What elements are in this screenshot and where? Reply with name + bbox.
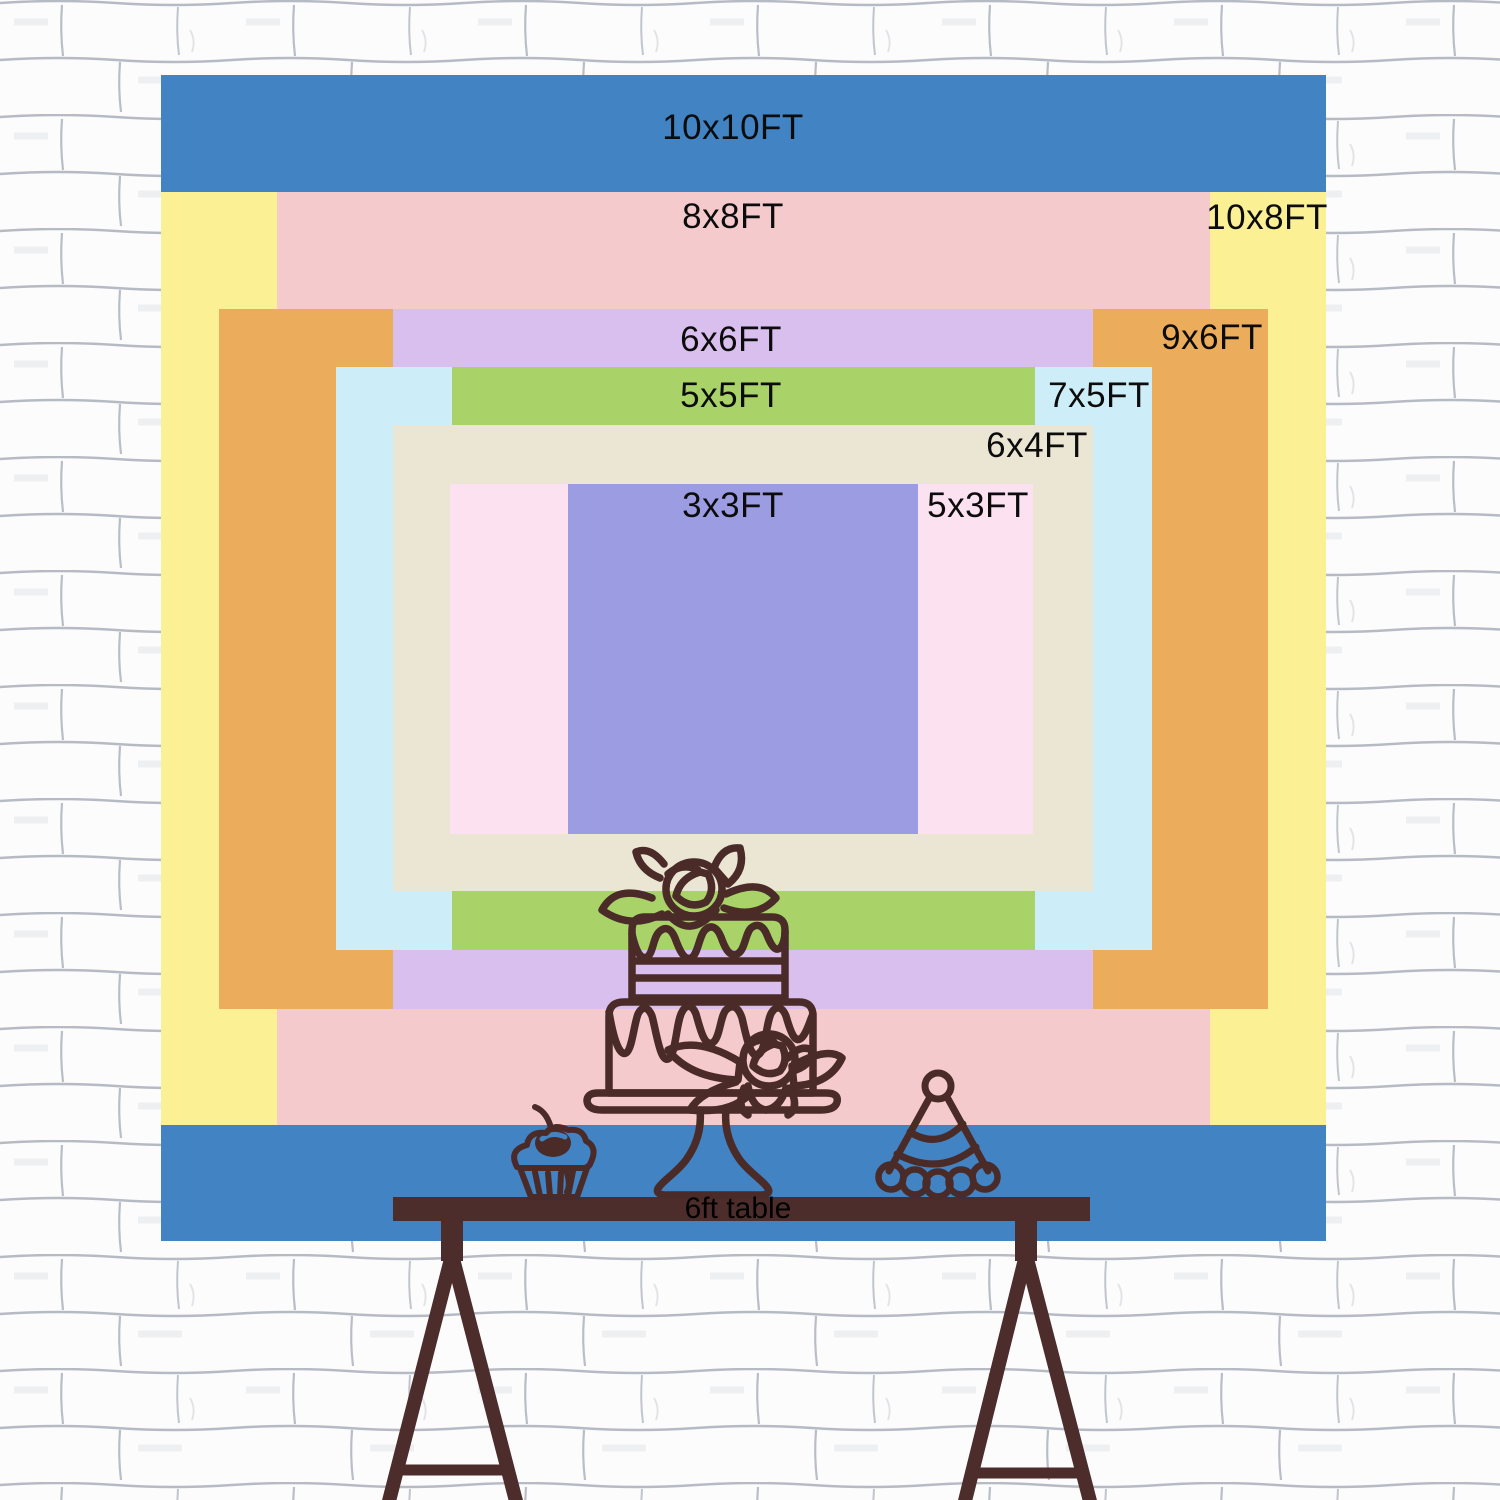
size-label-6x6ft: 6x6FT [680,320,782,360]
size-label-3x3ft: 3x3FT [682,486,784,526]
size-label-10x8ft: 10x8FT [1206,198,1328,238]
size-label-5x3ft: 5x3FT [927,486,1029,526]
size-label-5x5ft: 5x5FT [680,376,782,416]
size-label-10x10ft: 10x10FT [662,108,804,148]
size-rect-3x3ft [568,484,918,834]
size-label-9x6ft: 9x6FT [1161,318,1263,358]
table-size-label: 6ft table [685,1192,792,1226]
size-label-6x4ft: 6x4FT [986,426,1088,466]
size-label-8x8ft: 8x8FT [682,197,784,237]
size-label-7x5ft: 7x5FT [1048,376,1150,416]
backdrop-size-chart: 10x10FT 10x8FT 8x8FT 9x6FT 6x6FT 7x5FT 5… [0,0,1500,1500]
